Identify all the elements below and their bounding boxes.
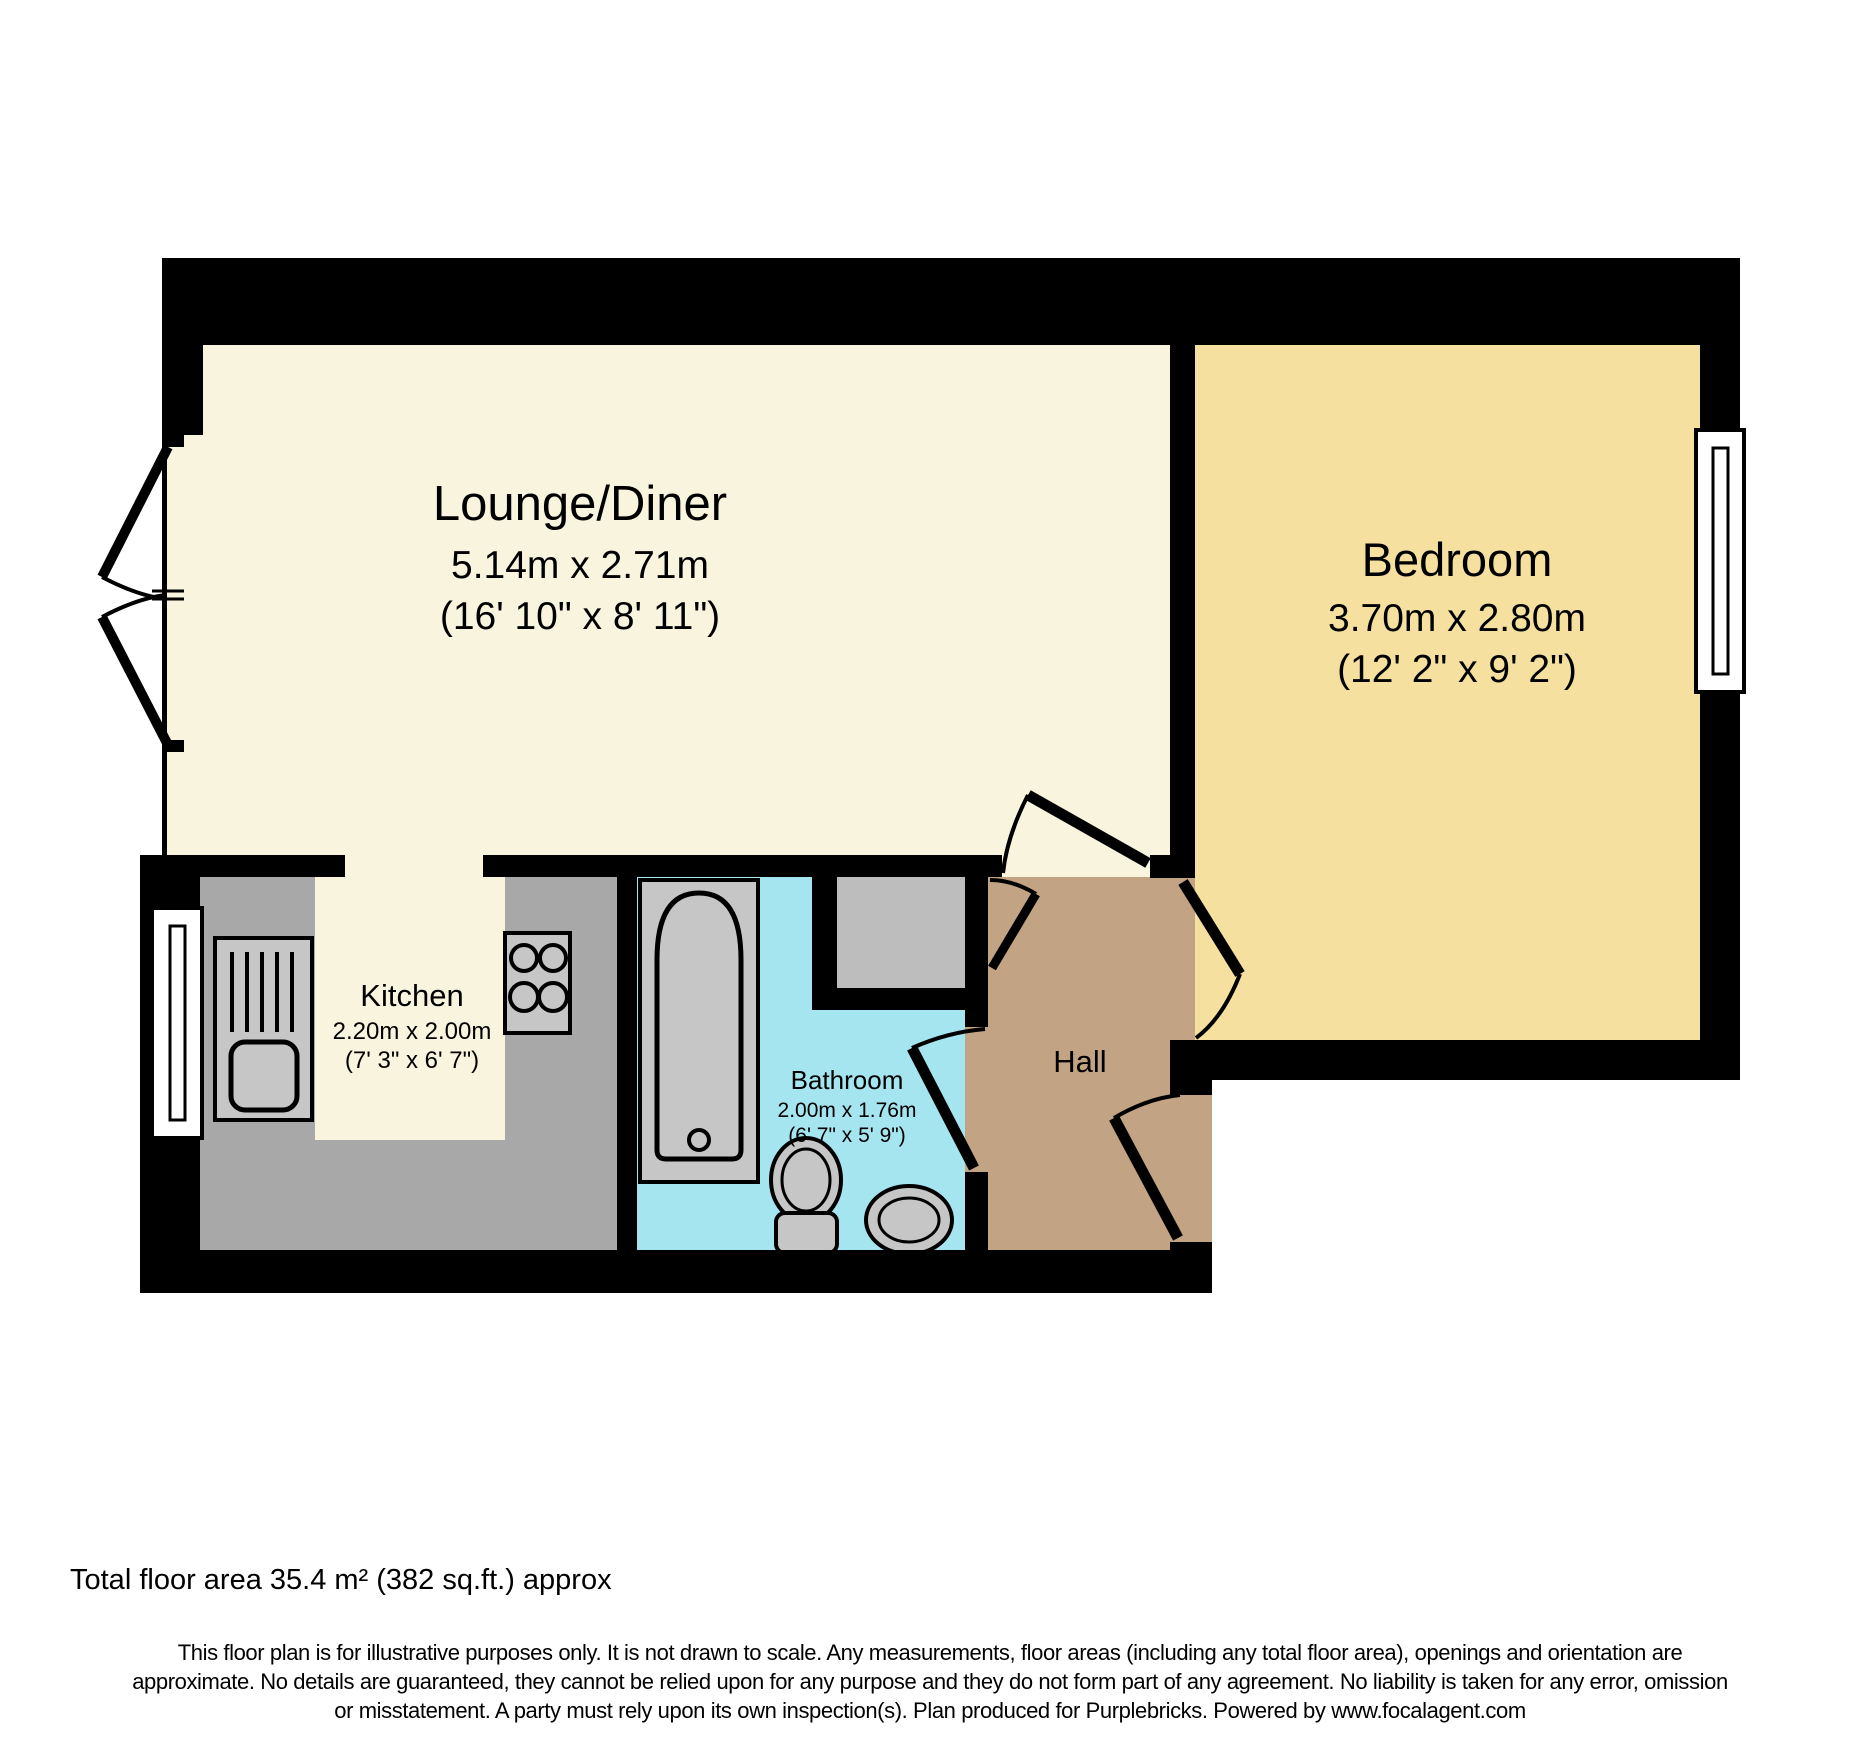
- wall-lounge-bedroom: [1170, 345, 1195, 855]
- wall-bathroom-hall-lower: [965, 1172, 988, 1253]
- bedroom-dimensions-imperial: (12' 2" x 9' 2"): [1212, 648, 1702, 693]
- wall-kitchen-bathroom: [617, 877, 637, 1250]
- disclaimer-line-3: or misstatement. A party must rely upon …: [0, 1696, 1860, 1725]
- front-doorway-opening: [1170, 1095, 1212, 1242]
- floor-plan-page: Lounge/Diner 5.14m x 2.71m (16' 10" x 8'…: [0, 0, 1860, 1745]
- lounge-name: Lounge/Diner: [330, 476, 830, 532]
- wall-stub-top: [162, 435, 184, 447]
- bedroom-dimensions-metric: 3.70m x 2.80m: [1212, 597, 1702, 642]
- bedroom-window-icon: [1696, 430, 1744, 692]
- lounge-doorway-opening: [1002, 855, 1150, 879]
- disclaimer-text: This floor plan is for illustrative purp…: [0, 1638, 1860, 1725]
- kitchen-dimensions-imperial: (7' 3" x 6' 7"): [312, 1047, 512, 1075]
- wall-lounge-bathroom: [483, 855, 1002, 877]
- wall-hall-right-lower: [1170, 1242, 1212, 1253]
- disclaimer-line-1: This floor plan is for illustrative purp…: [0, 1638, 1860, 1667]
- wall-lounge-door-jamb: [1150, 855, 1195, 878]
- bathroom-dimensions-metric: 2.00m x 1.76m: [747, 1099, 947, 1123]
- bedroom-name: Bedroom: [1212, 533, 1702, 587]
- basin-icon: [866, 1186, 952, 1254]
- bath-icon: [640, 880, 758, 1182]
- wall-lounge-kitchen: [162, 855, 345, 877]
- wall-left-thin: [162, 435, 167, 877]
- hob-icon: [505, 933, 570, 1033]
- wall-bedroom-bottom: [1170, 1040, 1740, 1080]
- wall-left-corner: [162, 345, 203, 435]
- wall-top: [162, 258, 1740, 345]
- wall-bathroom-hall-upper: [965, 877, 988, 1027]
- wall-cupboard-bottom: [812, 988, 966, 1010]
- bathroom-dimensions-imperial: (6' 7" x 5' 9"): [747, 1124, 947, 1148]
- floor-plan-drawing: [0, 0, 1860, 1745]
- kitchen-doorway-opening: [345, 855, 483, 879]
- total-floor-area-text: Total floor area 35.4 m² (382 sq.ft.) ap…: [70, 1564, 612, 1597]
- bedroom-label: Bedroom 3.70m x 2.80m (12' 2" x 9' 2"): [1212, 533, 1702, 699]
- hall-label: Hall: [1028, 1044, 1132, 1080]
- wall-hall-right-upper: [1170, 1080, 1212, 1095]
- wall-bottom: [140, 1250, 1212, 1293]
- lounge-label: Lounge/Diner 5.14m x 2.71m (16' 10" x 8'…: [330, 476, 830, 646]
- bathroom-label: Bathroom 2.00m x 1.76m (6' 7" x 5' 9"): [747, 1066, 947, 1149]
- disclaimer-line-2: approximate. No details are guaranteed, …: [0, 1667, 1860, 1696]
- kitchen-dimensions-metric: 2.20m x 2.00m: [312, 1018, 512, 1046]
- storage-cupboard: [837, 877, 966, 988]
- kitchen-sink-icon: [215, 938, 312, 1120]
- lounge-dimensions-metric: 5.14m x 2.71m: [330, 544, 830, 589]
- kitchen-name: Kitchen: [312, 978, 512, 1014]
- bathroom-name: Bathroom: [747, 1066, 947, 1096]
- hall-name: Hall: [1028, 1044, 1132, 1080]
- lounge-dimensions-imperial: (16' 10" x 8' 11"): [330, 595, 830, 640]
- kitchen-window-icon: [152, 908, 202, 1138]
- kitchen-label: Kitchen 2.20m x 2.00m (7' 3" x 6' 7"): [312, 978, 512, 1077]
- toilet-icon: [771, 1138, 841, 1253]
